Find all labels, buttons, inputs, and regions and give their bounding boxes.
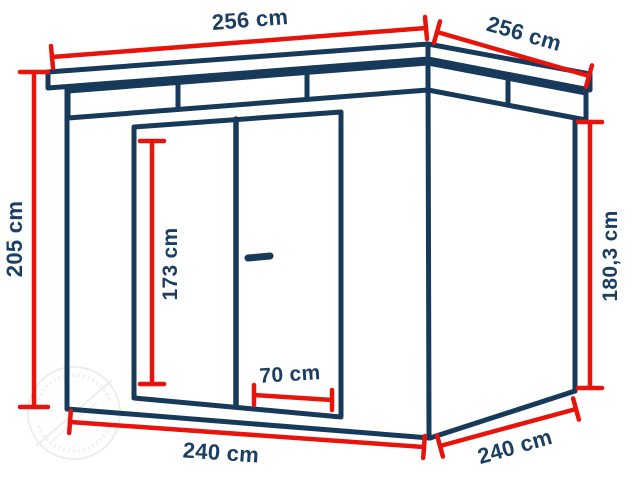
- shed-line-art: [0, 0, 639, 479]
- front-corner-edge: [428, 59, 429, 438]
- door-handle-icon: [248, 256, 270, 258]
- label-wall-height-right: 180,3 cm: [599, 210, 623, 301]
- label-total-height-left: 205 cm: [2, 201, 28, 277]
- shed-dimension-diagram: 256 cm 256 cm 205 cm 173 cm 70 cm 180,3 …: [0, 0, 639, 479]
- label-base-front-width: 240 cm: [182, 437, 260, 468]
- label-door-height: 173 cm: [159, 227, 183, 300]
- label-door-leaf-width: 70 cm: [259, 361, 321, 389]
